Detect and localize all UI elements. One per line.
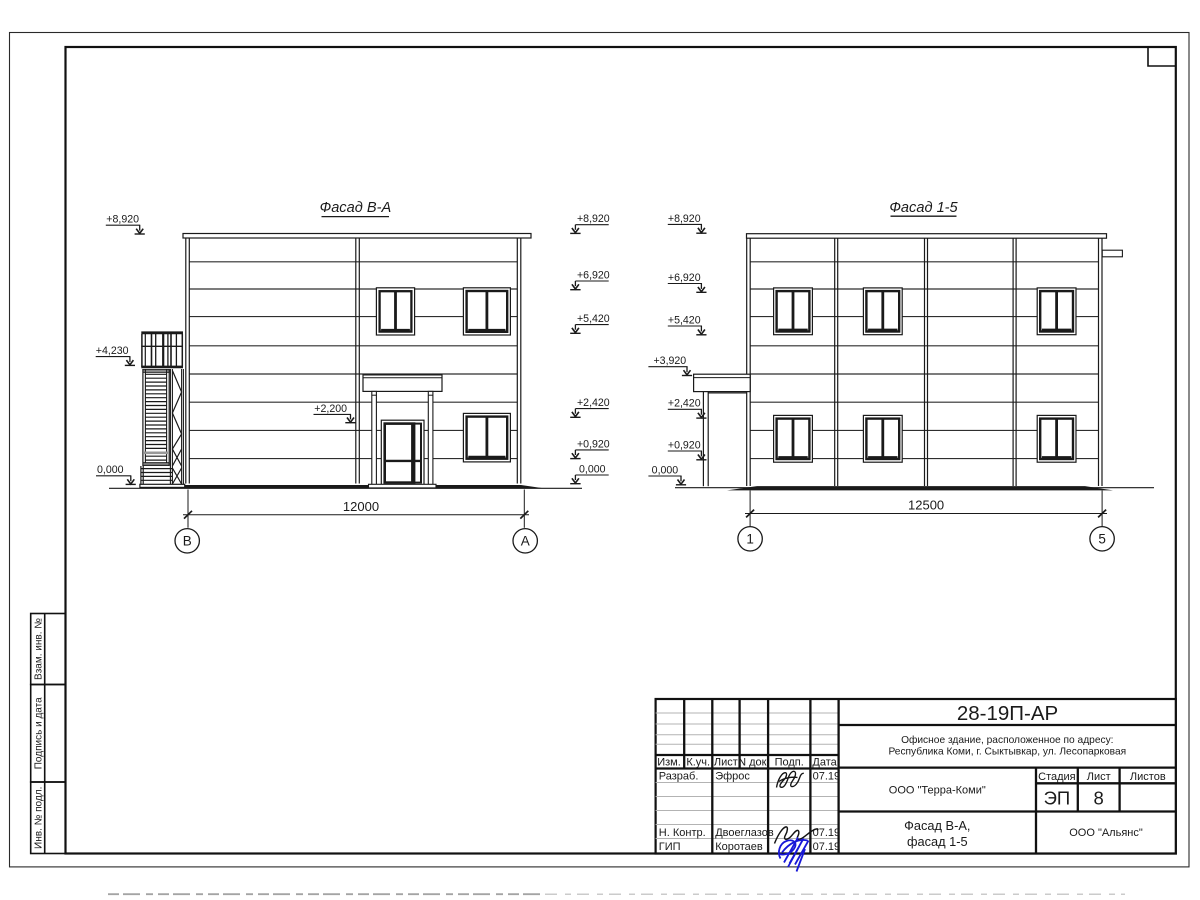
svg-text:Эфрос: Эфрос bbox=[715, 770, 750, 782]
svg-text:+0,920: +0,920 bbox=[668, 439, 701, 451]
svg-text:Инв. № подл.: Инв. № подл. bbox=[34, 787, 45, 849]
svg-text:+8,920: +8,920 bbox=[106, 214, 139, 226]
svg-text:Изм.: Изм. bbox=[657, 756, 681, 768]
svg-text:ООО "Терра-Коми": ООО "Терра-Коми" bbox=[889, 785, 986, 797]
svg-text:Лист: Лист bbox=[714, 756, 738, 768]
svg-text:Взам. инв. №: Взам. инв. № bbox=[34, 618, 45, 680]
svg-text:Фасад В-А,: Фасад В-А, bbox=[904, 818, 970, 833]
svg-text:8: 8 bbox=[1094, 787, 1104, 808]
svg-text:Подпись и дата: Подпись и дата bbox=[34, 697, 45, 769]
svg-text:Дата: Дата bbox=[812, 756, 837, 768]
svg-text:ООО "Альянс": ООО "Альянс" bbox=[1069, 827, 1143, 839]
svg-text:N док.: N док. bbox=[738, 756, 769, 768]
svg-text:Листов: Листов bbox=[1130, 771, 1166, 783]
svg-text:+6,920: +6,920 bbox=[668, 272, 701, 284]
svg-text:Стадия: Стадия bbox=[1038, 771, 1076, 783]
svg-text:А: А bbox=[521, 534, 530, 549]
svg-text:07.19: 07.19 bbox=[813, 841, 841, 853]
svg-text:0,000: 0,000 bbox=[97, 464, 124, 476]
svg-text:0,000: 0,000 bbox=[652, 464, 679, 476]
svg-text:фасад 1-5: фасад 1-5 bbox=[907, 834, 968, 849]
svg-text:ГИП: ГИП bbox=[659, 841, 681, 853]
svg-text:Н. Контр.: Н. Контр. bbox=[659, 827, 706, 839]
svg-text:Подп.: Подп. bbox=[775, 756, 804, 768]
svg-text:Коротаев: Коротаев bbox=[715, 841, 763, 853]
svg-text:ЭП: ЭП bbox=[1044, 787, 1071, 808]
svg-text:+8,920: +8,920 bbox=[668, 213, 701, 225]
svg-text:+2,200: +2,200 bbox=[314, 403, 347, 415]
svg-text:Фасад 1-5: Фасад 1-5 bbox=[889, 200, 958, 216]
svg-text:Разраб.: Разраб. bbox=[659, 770, 699, 782]
svg-text:+2,420: +2,420 bbox=[668, 398, 701, 410]
svg-text:+5,420: +5,420 bbox=[668, 314, 701, 326]
svg-text:+8,920: +8,920 bbox=[577, 213, 610, 225]
svg-text:Двоеглазов: Двоеглазов bbox=[715, 827, 774, 839]
svg-text:+3,920: +3,920 bbox=[653, 355, 686, 367]
svg-text:28-19П-АР: 28-19П-АР bbox=[957, 702, 1058, 725]
svg-text:+4,230: +4,230 bbox=[96, 345, 129, 357]
svg-text:Лист: Лист bbox=[1087, 771, 1111, 783]
svg-text:12000: 12000 bbox=[343, 499, 379, 514]
svg-text:12500: 12500 bbox=[908, 498, 944, 513]
svg-text:В: В bbox=[183, 534, 192, 549]
svg-text:Республика Коми, г. Сыктывкар,: Республика Коми, г. Сыктывкар, ул. Лесоп… bbox=[888, 746, 1126, 758]
svg-text:+0,920: +0,920 bbox=[577, 438, 610, 450]
svg-text:+2,420: +2,420 bbox=[577, 397, 610, 409]
svg-text:Фасад В-А: Фасад В-А bbox=[320, 200, 392, 216]
svg-text:0,000: 0,000 bbox=[579, 463, 606, 475]
svg-text:1: 1 bbox=[746, 532, 754, 547]
svg-text:+5,420: +5,420 bbox=[577, 313, 610, 325]
svg-text:07.19: 07.19 bbox=[813, 771, 841, 783]
svg-text:К.уч.: К.уч. bbox=[686, 756, 710, 768]
svg-text:+6,920: +6,920 bbox=[577, 269, 610, 281]
svg-text:5: 5 bbox=[1098, 532, 1106, 547]
svg-text:Офисное здание, расположенное: Офисное здание, расположенное по адресу: bbox=[901, 734, 1113, 746]
